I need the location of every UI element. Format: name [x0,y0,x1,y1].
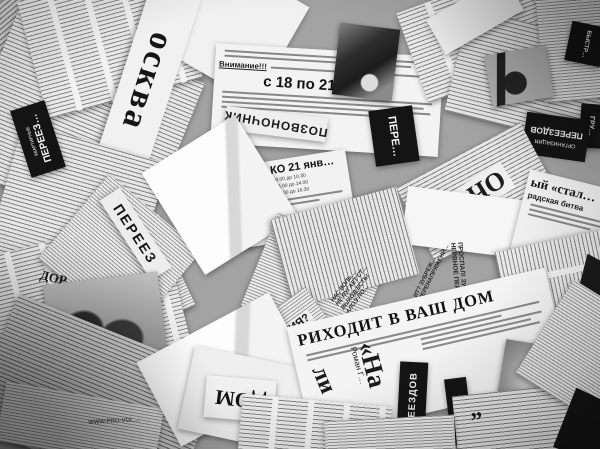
newspaper-collage-photo: осква кв… КВАРТИРНЫЕ ПЕРЕЕЗ… ПЕРЕЕЗ ДОР…… [0,0,600,449]
dark-photo-fragment [332,23,400,102]
pere-badge: ПЕРЕ… [368,105,419,167]
pere-text: ПЕРЕ… [385,115,403,157]
bystro-text: БЫСТР… [580,30,592,59]
attention-text: Внимание!!! [219,59,267,71]
li-big-fragment: ли [306,363,340,398]
revolver-photo [484,45,554,107]
newspaper-scrap [324,415,456,449]
